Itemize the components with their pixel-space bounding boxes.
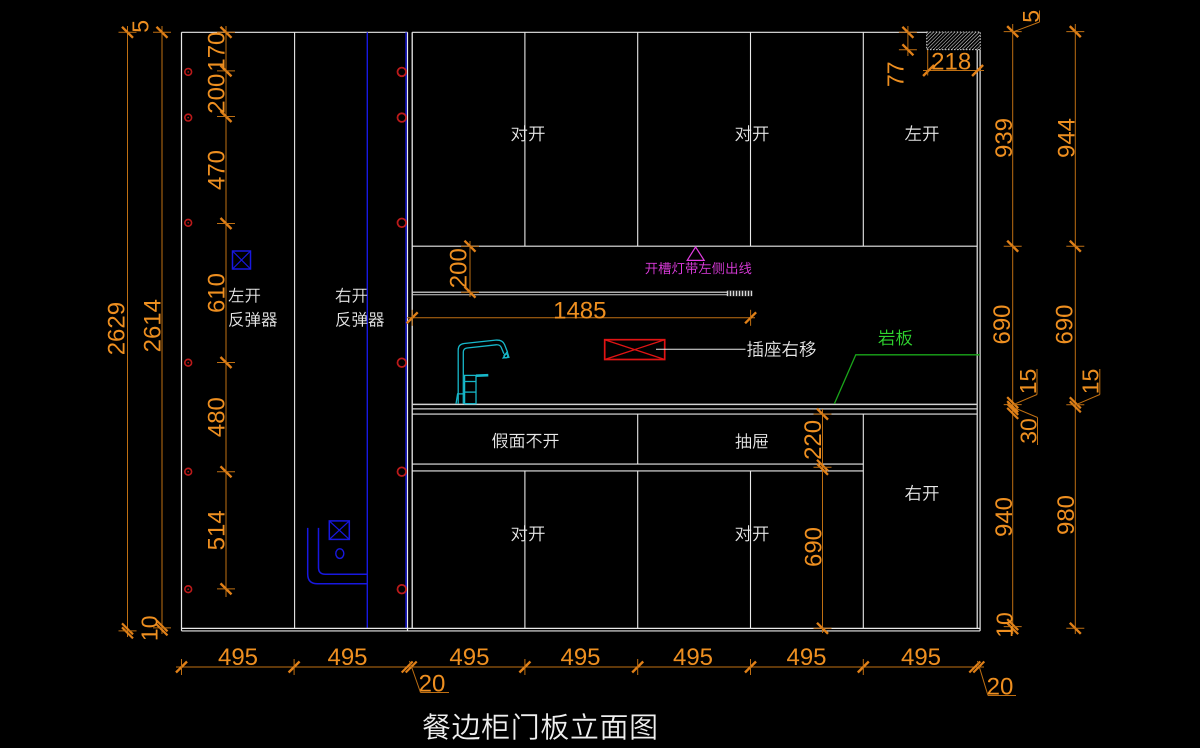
svg-text:470: 470 xyxy=(203,150,230,190)
svg-text:218: 218 xyxy=(931,48,971,75)
svg-text:940: 940 xyxy=(991,497,1018,537)
svg-text:20: 20 xyxy=(419,671,446,698)
svg-text:690: 690 xyxy=(801,527,828,567)
svg-text:170: 170 xyxy=(203,32,230,72)
svg-text:495: 495 xyxy=(673,644,713,671)
svg-text:495: 495 xyxy=(901,644,941,671)
svg-text:495: 495 xyxy=(560,644,600,671)
svg-text:1485: 1485 xyxy=(553,297,606,324)
svg-text:495: 495 xyxy=(449,644,489,671)
svg-text:690: 690 xyxy=(989,304,1016,344)
svg-text:495: 495 xyxy=(786,644,826,671)
svg-text:480: 480 xyxy=(203,397,230,437)
svg-text:495: 495 xyxy=(327,644,367,671)
svg-text:20: 20 xyxy=(987,674,1014,701)
svg-text:220: 220 xyxy=(800,420,827,460)
svg-text:495: 495 xyxy=(218,644,258,671)
svg-text:200: 200 xyxy=(203,74,230,114)
svg-text:944: 944 xyxy=(1053,118,1080,158)
svg-text:690: 690 xyxy=(1051,304,1078,344)
svg-text:980: 980 xyxy=(1053,495,1080,535)
svg-text:10: 10 xyxy=(991,612,1017,638)
svg-text:77: 77 xyxy=(883,61,909,87)
svg-text:10: 10 xyxy=(137,616,163,642)
svg-text:610: 610 xyxy=(203,273,230,313)
svg-text:2629: 2629 xyxy=(103,302,130,355)
svg-text:5: 5 xyxy=(127,20,153,33)
svg-text:939: 939 xyxy=(991,118,1018,158)
svg-text:2614: 2614 xyxy=(139,299,166,352)
svg-text:514: 514 xyxy=(203,510,230,550)
svg-text:5: 5 xyxy=(1018,10,1044,23)
svg-text:200: 200 xyxy=(445,248,472,288)
